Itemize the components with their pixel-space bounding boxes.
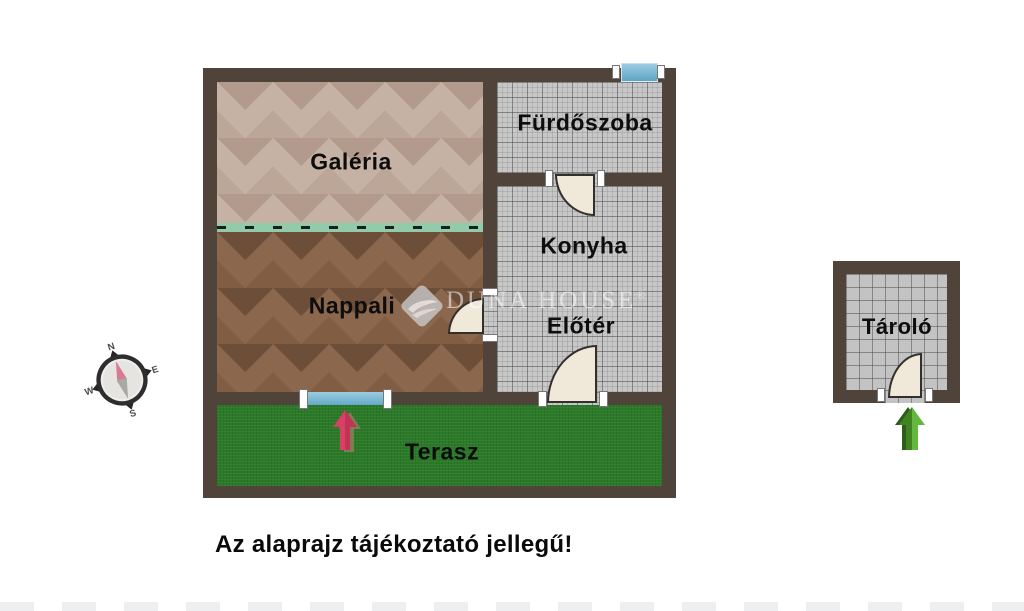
window-jamb <box>612 65 620 79</box>
window-jamb <box>657 65 665 79</box>
room-label-konyha: Konyha <box>540 233 627 260</box>
duna-house-watermark: DUNA HOUSE® <box>446 287 645 315</box>
door-jamb <box>597 170 605 187</box>
door-jamb <box>538 391 547 407</box>
room-label-nappali: Nappali <box>309 293 396 320</box>
compass-label-w: W <box>83 385 95 398</box>
watermark-text: DUNA HOUSE <box>446 287 636 314</box>
room-label-furdoszoba: Fürdőszoba <box>517 110 652 137</box>
room-label-galeria: Galéria <box>310 149 392 176</box>
door-jamb <box>925 388 933 402</box>
bottom-crop-artifact <box>0 602 1024 611</box>
outbuilding-tarolo: Tároló <box>833 261 960 403</box>
compass-label-n: N <box>106 341 116 353</box>
door-jamb <box>877 388 885 402</box>
window-icon <box>621 63 658 82</box>
room-label-tarolo: Tároló <box>862 314 932 340</box>
compass-rose-icon: N E S W <box>83 341 161 419</box>
room-label-eloter: Előtér <box>547 313 615 340</box>
entrance-arrow-red-icon <box>330 408 364 454</box>
duna-house-logo-icon <box>396 280 448 332</box>
compass-label-e: E <box>151 364 160 376</box>
door-jamb <box>599 391 608 407</box>
compass-label-s: S <box>128 408 137 419</box>
gallery-edge-line <box>217 223 483 232</box>
door-jamb <box>482 334 498 342</box>
entrance-arrow-green-icon <box>895 405 927 453</box>
room-label-terasz: Terasz <box>405 439 479 466</box>
window-jamb <box>299 389 308 409</box>
window-icon <box>308 392 383 405</box>
door-jamb <box>545 170 553 187</box>
disclaimer-text: Az alaprajz tájékoztató jellegű! <box>215 531 573 559</box>
window-jamb <box>383 389 392 409</box>
gallery-edge-dashes <box>217 226 483 229</box>
registered-mark: ® <box>636 290 644 302</box>
